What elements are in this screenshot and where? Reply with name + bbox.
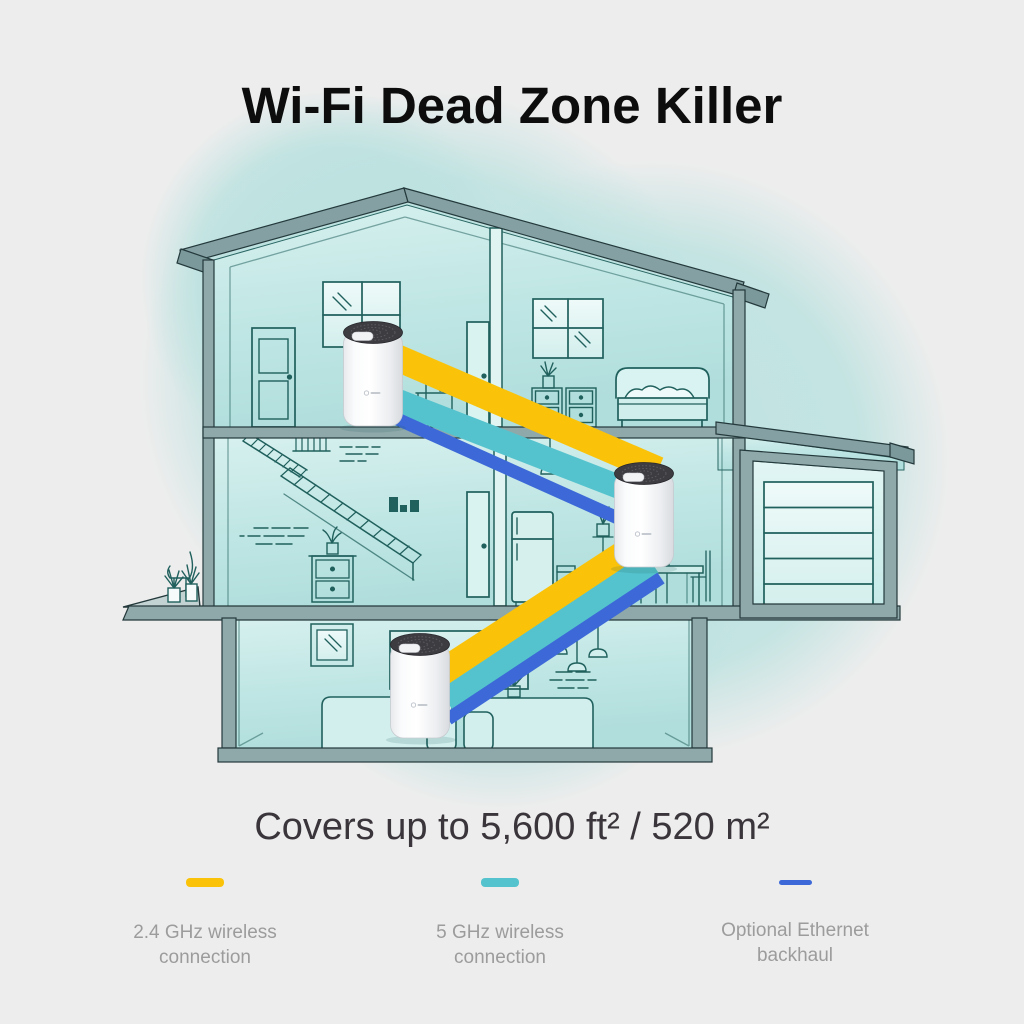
legend-item-5ghz: 5 GHz wireless connection — [360, 878, 640, 970]
legend-label-24ghz: 2.4 GHz wireless connection — [65, 920, 345, 970]
doorway-icon — [467, 322, 489, 427]
balcony — [123, 552, 200, 607]
garage-door-icon — [764, 482, 873, 609]
deco-unit-middle-floor — [615, 463, 674, 568]
legend-item-ethernet: Optional Ethernet backhaul — [655, 878, 935, 970]
picture-frame-icon — [311, 624, 353, 666]
page: Wi-Fi Dead Zone Killer Covers up to 5,60… — [0, 0, 1024, 1024]
ethernet-dash-icon — [779, 880, 812, 885]
legend-label-5ghz: 5 GHz wireless connection — [360, 920, 640, 970]
kitchen-door-icon — [467, 492, 489, 597]
deco-unit-top-floor — [344, 322, 403, 427]
page-title: Wi-Fi Dead Zone Killer — [0, 76, 1024, 135]
24ghz-dash-icon — [186, 878, 224, 887]
house-illustration — [0, 0, 1024, 1024]
bedroom-window-icon — [533, 299, 603, 358]
bed-icon — [616, 368, 709, 427]
legend: 2.4 GHz wireless connection 5 GHz wirele… — [0, 878, 1024, 970]
5ghz-dash-icon — [481, 878, 519, 887]
deco-unit-ground-floor — [391, 634, 450, 739]
legend-item-24ghz: 2.4 GHz wireless connection — [65, 878, 345, 970]
coverage-caption: Covers up to 5,600 ft² / 520 m² — [0, 806, 1024, 849]
legend-label-ethernet: Optional Ethernet backhaul — [655, 918, 935, 968]
